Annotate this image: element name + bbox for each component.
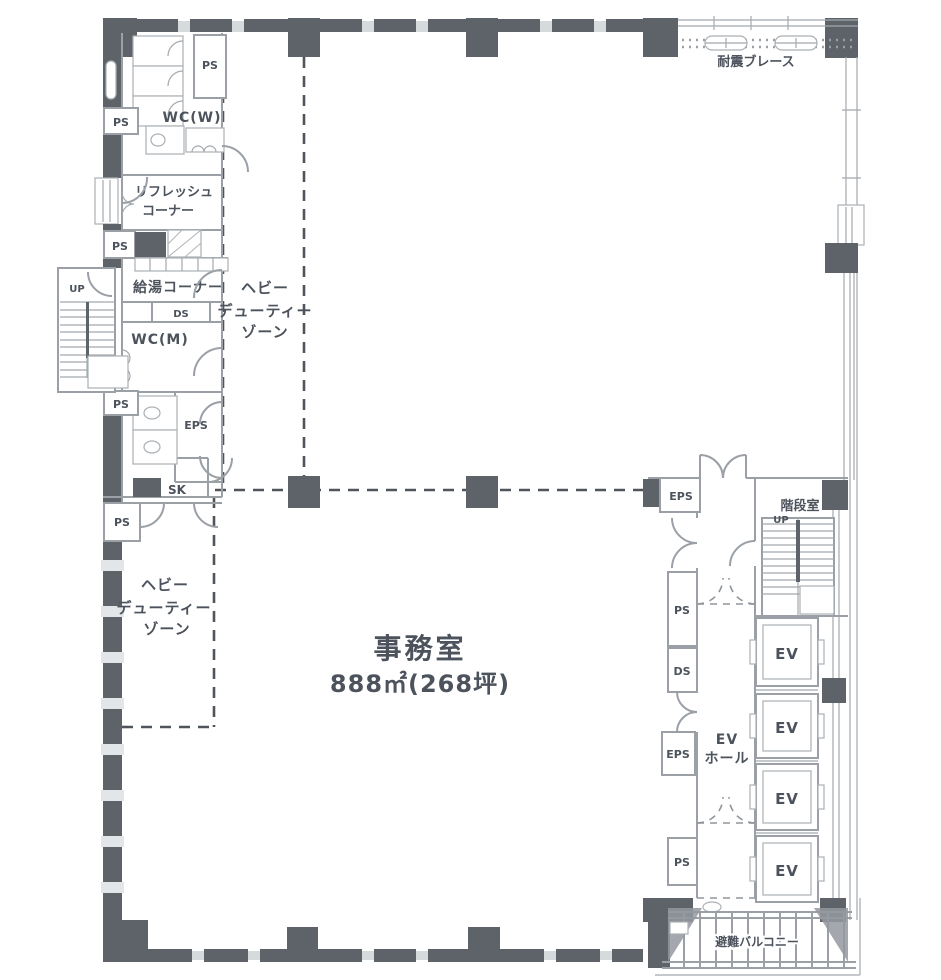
ps-label-east2: PS — [674, 856, 690, 869]
eps-label-core: EPS — [184, 419, 208, 432]
wc-men-label: WC(M) — [131, 332, 188, 348]
northwest-core: PS WC(W) PS リフレッシュ コーナー PS 給湯コーナー DS — [103, 33, 248, 541]
ev-label-1: EV — [775, 645, 799, 663]
ds-label-east: DS — [673, 665, 690, 678]
ps-label-left2: PS — [112, 240, 128, 253]
up-label-east: UP — [773, 515, 788, 526]
ds-label-core: DS — [173, 309, 189, 320]
stair-room-label: 階段室 — [780, 498, 819, 514]
refresh-corner-label-2: コーナー — [142, 204, 194, 219]
bottom-wall — [148, 898, 693, 968]
ev-label-2: EV — [775, 719, 799, 737]
east-core: EPS PS DS EPS PS — [648, 455, 848, 912]
ps-label-left4: PS — [114, 516, 130, 529]
floor-plan-drawing: 耐震ブレース — [0, 0, 941, 980]
east-stair-room: 階段室 UP — [755, 498, 848, 616]
eps-label-east2: EPS — [666, 748, 690, 761]
ev-label-4: EV — [775, 862, 799, 880]
eps-label-east-top: EPS — [669, 490, 693, 503]
heavy-duty-zone-label-north: ヘビー デューティー ゾーン — [217, 279, 312, 341]
floor-plan-page: 耐震ブレース — [0, 0, 941, 980]
elevator-bank: EV EV EV EV — [750, 618, 824, 902]
ps-label-left1: PS — [113, 116, 129, 129]
kyuto-corner: 給湯コーナー — [133, 258, 228, 298]
zone-sw-line2: デューティー — [116, 599, 211, 617]
office-area-label: 888㎡(268坪) — [330, 670, 510, 698]
wc-women-label: WC(W) — [163, 110, 222, 126]
zone-n-line1: ヘビー — [241, 279, 289, 297]
ev-label-3: EV — [775, 790, 799, 808]
ev-hall-label-2: ホール — [705, 751, 750, 767]
refresh-corner-label-1: リフレッシュ — [135, 185, 213, 200]
west-stair: UP — [58, 268, 128, 392]
heavy-duty-zone-label-southwest: ヘビー デューティー ゾーン — [116, 576, 211, 638]
evacuation-balcony: 避難バルコニー — [655, 898, 860, 975]
office-room-label: 事務室 — [373, 632, 466, 665]
zone-sw-line3: ゾーン — [143, 620, 190, 638]
ps-label-left3: PS — [113, 398, 129, 411]
kyuto-corner-label: 給湯コーナー — [133, 279, 223, 296]
wc-women: PS WC(W) — [133, 35, 226, 154]
sk-label: SK — [168, 483, 187, 497]
balcony-label: 避難バルコニー — [715, 934, 799, 949]
right-wall — [820, 57, 864, 922]
zone-n-line2: デューティー — [217, 302, 312, 320]
zone-sw-line1: ヘビー — [141, 576, 189, 594]
refresh-corner: リフレッシュ コーナー — [122, 177, 213, 219]
ps-label-east1: PS — [674, 604, 690, 617]
up-label-west: UP — [69, 284, 84, 295]
ps-label-wcw: PS — [202, 59, 218, 72]
interior-columns — [288, 476, 665, 508]
ev-hall-label-1: EV — [716, 732, 738, 748]
seismic-brace-label: 耐震ブレース — [717, 54, 794, 70]
eps-core: EPS — [184, 402, 222, 478]
zone-n-line3: ゾーン — [241, 323, 288, 341]
